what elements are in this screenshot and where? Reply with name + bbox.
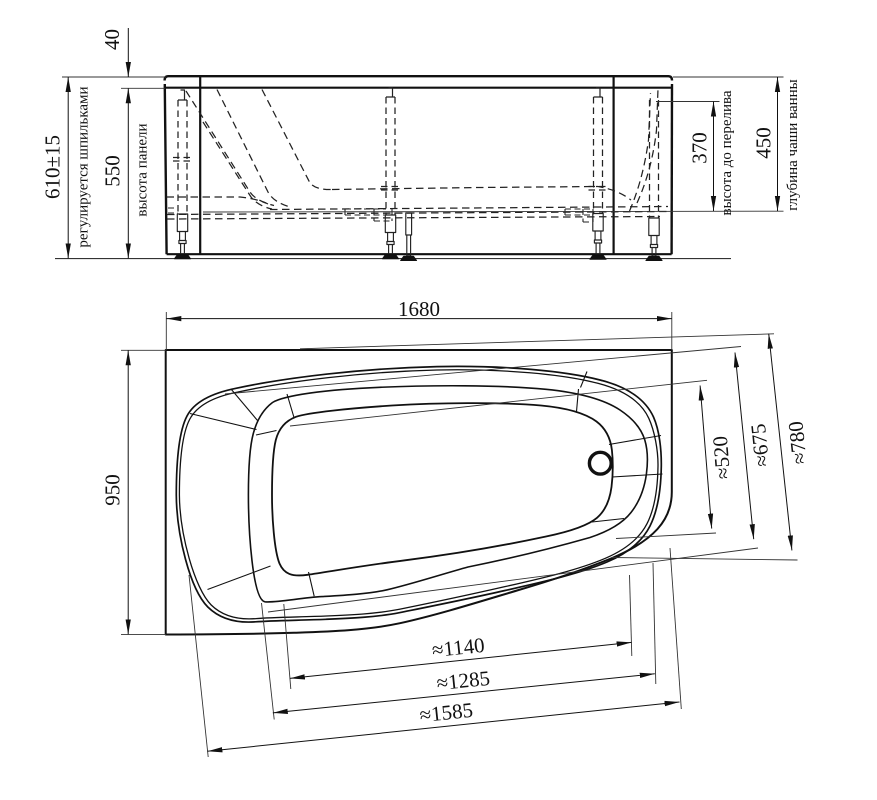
svg-text:≈520: ≈520 bbox=[708, 435, 735, 480]
svg-text:450: 450 bbox=[752, 127, 776, 159]
svg-text:950: 950 bbox=[101, 474, 125, 506]
svg-text:≈1585: ≈1585 bbox=[418, 698, 474, 727]
svg-text:≈1140: ≈1140 bbox=[431, 633, 486, 662]
svg-text:40: 40 bbox=[100, 29, 124, 50]
svg-text:≈1285: ≈1285 bbox=[435, 666, 491, 695]
svg-text:370: 370 bbox=[688, 132, 712, 164]
svg-text:≈780: ≈780 bbox=[783, 420, 811, 465]
svg-text:≈675: ≈675 bbox=[746, 423, 774, 468]
svg-text:высота панели: высота панели bbox=[135, 123, 151, 216]
svg-text:550: 550 bbox=[101, 155, 125, 187]
svg-text:регулируется шпильками: регулируется шпильками bbox=[76, 86, 92, 247]
svg-text:глубина чаши ванны: глубина чаши ванны bbox=[785, 79, 801, 210]
svg-text:высота до перелива: высота до перелива bbox=[719, 90, 735, 215]
svg-text:1680: 1680 bbox=[398, 297, 440, 321]
svg-text:610±15: 610±15 bbox=[41, 135, 65, 199]
